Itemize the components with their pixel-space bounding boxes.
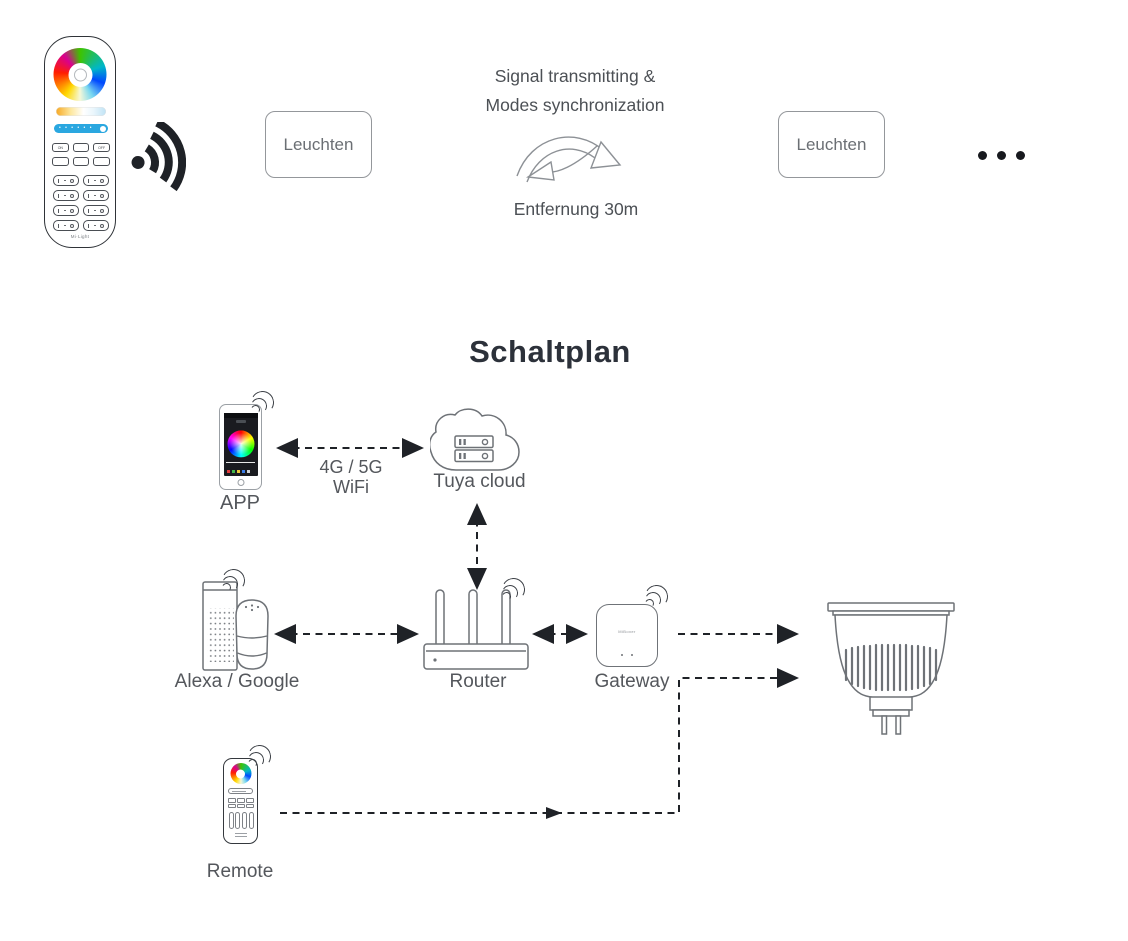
- wifi-arcs-icon: [248, 742, 274, 768]
- luminaire-box-2: Leuchten: [778, 111, 885, 178]
- remote-8zone-icon: ON OFF Mi·Light: [44, 36, 116, 248]
- app-color-wheel-icon: [227, 430, 254, 457]
- luminaire-box-1: Leuchten: [265, 111, 372, 178]
- remote-zone-buttons: [229, 812, 254, 829]
- off-button: OFF: [93, 143, 110, 152]
- wheel-hub: [74, 68, 87, 81]
- zone-button: [53, 205, 79, 216]
- gateway-label: Gateway: [592, 671, 672, 693]
- speed-button: [52, 157, 69, 166]
- signal-text-line1: Signal transmitting &: [425, 66, 725, 87]
- sync-arrows-icon: [513, 120, 635, 194]
- remote-slider: [228, 788, 253, 794]
- zone-row-2: [53, 190, 109, 201]
- signal-text-line2: Modes synchronization: [425, 95, 725, 116]
- zone-button: [83, 175, 109, 186]
- gateway-brand-label: MiBoxer: [597, 629, 657, 634]
- arrow-remote-midhead: [546, 807, 562, 819]
- tuya-label: Tuya cloud: [432, 471, 527, 493]
- phone-pill: [236, 420, 246, 423]
- zone-button: [53, 175, 79, 186]
- brightness-slider-icon: [54, 124, 108, 133]
- wifi-arcs-icon: [645, 582, 671, 608]
- remote-button-grid: [228, 798, 254, 808]
- remote-label: Remote: [205, 861, 275, 883]
- link-labels: 4G / 5G WiFi: [301, 457, 401, 497]
- wifi-arcs-icon: [502, 575, 528, 601]
- remote-button-row-1: ON OFF: [52, 143, 110, 152]
- mode-button: [73, 143, 90, 152]
- on-button: ON: [52, 143, 69, 152]
- luminaire-label: Leuchten: [797, 135, 867, 155]
- app-slider: [226, 462, 255, 464]
- zone-row-1: [53, 175, 109, 186]
- fx-button: [93, 157, 110, 166]
- smartphone-icon: [219, 404, 262, 490]
- zone-button: [83, 190, 109, 201]
- color-wheel-icon: [54, 48, 107, 101]
- led-spotlight-icon: [826, 598, 956, 738]
- zone-button: [83, 205, 109, 216]
- white-button: [73, 157, 90, 166]
- connections-overlay: [0, 380, 1128, 941]
- ellipsis-icon: [978, 151, 1025, 160]
- remote-brand-mark: [235, 833, 247, 837]
- page: ON OFF Mi·Light: [0, 0, 1128, 941]
- phone-screen: [224, 413, 258, 476]
- link-line1: 4G / 5G: [301, 457, 401, 477]
- router-label: Router: [438, 671, 518, 693]
- zone-button: [53, 190, 79, 201]
- remote-button-row-2: [52, 157, 110, 166]
- gateway-leds: [621, 654, 633, 656]
- app-label: APP: [212, 492, 268, 514]
- zone-button: [83, 220, 109, 231]
- arrow-remote-bulb: [280, 678, 795, 813]
- remote-4zone-icon: [223, 758, 258, 844]
- zone-button: [53, 220, 79, 231]
- zone-row-4: [53, 220, 109, 231]
- cct-slider-icon: [56, 107, 106, 116]
- phone-home-button: [237, 479, 244, 486]
- luminaire-label: Leuchten: [284, 135, 354, 155]
- section-title: Schaltplan: [400, 334, 700, 370]
- distance-label: Entfernung 30m: [476, 199, 676, 220]
- alexa-label: Alexa / Google: [172, 671, 302, 693]
- zone-row-3: [53, 205, 109, 216]
- remote-brand-label: Mi·Light: [45, 234, 115, 239]
- rf-signal-icon: [128, 122, 186, 202]
- gateway-icon: MiBoxer: [596, 604, 658, 667]
- app-swatches: [227, 470, 250, 473]
- link-line2: WiFi: [301, 477, 401, 497]
- wifi-arcs-icon: [222, 566, 248, 592]
- wifi-arcs-icon: [251, 388, 277, 414]
